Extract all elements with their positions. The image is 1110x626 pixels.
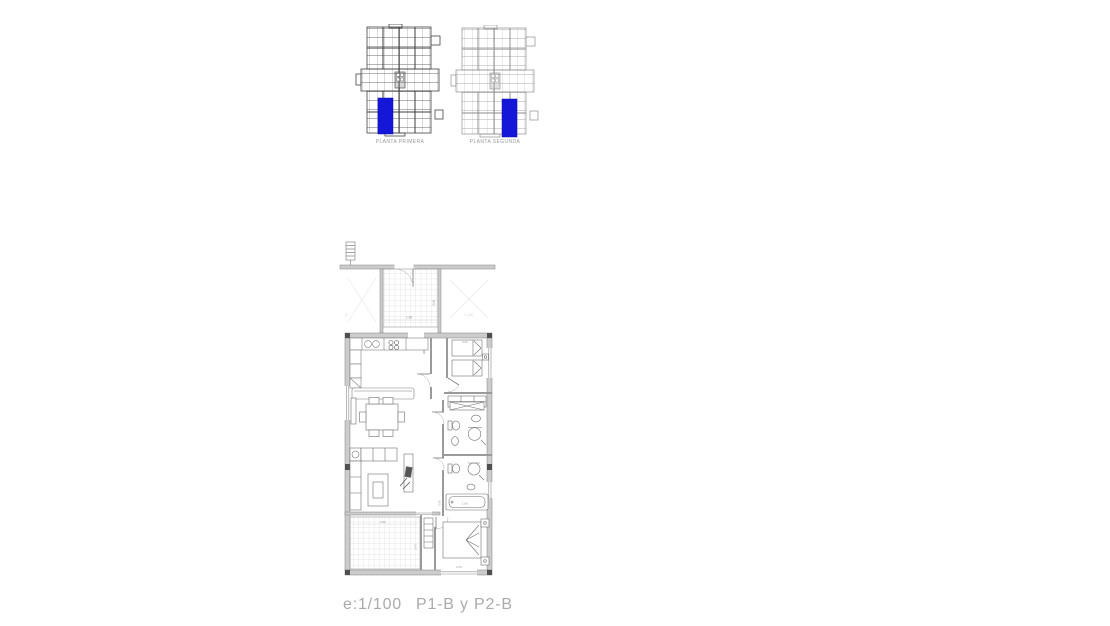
window-note-label: V (26) (464, 313, 473, 317)
living-window (345, 386, 351, 420)
highlighted-unit-second-floor (502, 99, 517, 137)
kitchen-door-arc (417, 374, 430, 387)
overview-plan-second-floor-drawing (450, 25, 540, 138)
bath1-bidet-icon (452, 437, 459, 446)
nightstand (483, 354, 489, 360)
bedroom1-window (487, 348, 493, 378)
nightstand-top (481, 519, 489, 527)
stair-core (395, 72, 405, 88)
stair-core (490, 73, 500, 89)
bath2-sink-icon (467, 484, 475, 490)
overview-plan-first-floor (355, 24, 445, 142)
dim-bedroom1-width: 3.00 (462, 340, 468, 344)
overview-plan-first-floor-label: PLANTA PRIMERA (352, 139, 448, 145)
bath1-shower-icon (468, 428, 486, 446)
left-mark-label: D (345, 313, 348, 317)
bath1-sink-icon (472, 415, 481, 422)
overview-plan-first-floor-drawing (355, 24, 445, 137)
highlighted-unit-first-floor (378, 98, 393, 134)
kitchen (350, 338, 428, 399)
kitchen-appliances (350, 350, 361, 388)
apartment-floorplan-drawing: D V (26) 2.86 (338, 236, 503, 581)
bath2-shower-icon (468, 463, 484, 480)
apartment-floorplan: D V (26) 2.86 (338, 236, 503, 586)
overview-plan-second-floor (450, 25, 540, 143)
overview-plan-second-floor-label: PLANTA SEGUNDA (447, 139, 543, 145)
living-room (350, 398, 413, 511)
scale-text: e:1/100 (343, 596, 402, 613)
bathrooms: 1.80 0.90 (432, 400, 492, 516)
bath1-toilet-icon (448, 421, 460, 430)
page-canvas: PLANTA PRIMERA (0, 0, 1110, 626)
bedroom2: 2.53 (436, 517, 489, 569)
coffee-table (368, 474, 388, 506)
closet-column (424, 518, 433, 548)
terrace-top: 2.86 3.00 (380, 269, 441, 333)
plan-caption: e:1/100P1-B y P2-B (343, 596, 513, 614)
dim-terrace-width: 2.86 (406, 316, 412, 320)
nightstand-bottom (481, 557, 489, 565)
terrace-bottom: 3.86 3.50 (350, 517, 420, 569)
dim-bath-width: 0.90 (438, 500, 442, 506)
bedroom1: 3.00 (446, 338, 489, 392)
bed-single-2 (452, 360, 482, 376)
dim-terrace2-width: 3.86 (380, 520, 386, 524)
dim-terrace-depth: 3.00 (432, 300, 436, 306)
bath2-toilet-icon (448, 464, 460, 473)
bedroom2-window (441, 570, 477, 576)
shelf (351, 398, 356, 424)
plan-ids-text: P1-B y P2-B (416, 596, 513, 613)
entry-opening (408, 333, 424, 339)
bath1-shelf (450, 402, 484, 410)
dim-tub-length: 1.80 (462, 502, 468, 506)
dim-bedroom2-width: 2.53 (456, 565, 462, 569)
bedroom1-door-arc (448, 385, 459, 392)
tv-unit (400, 454, 413, 492)
bed-double (443, 522, 481, 558)
stair-icon (346, 242, 355, 265)
dim-terrace2-depth: 3.50 (414, 544, 418, 550)
dining-table (360, 398, 405, 437)
